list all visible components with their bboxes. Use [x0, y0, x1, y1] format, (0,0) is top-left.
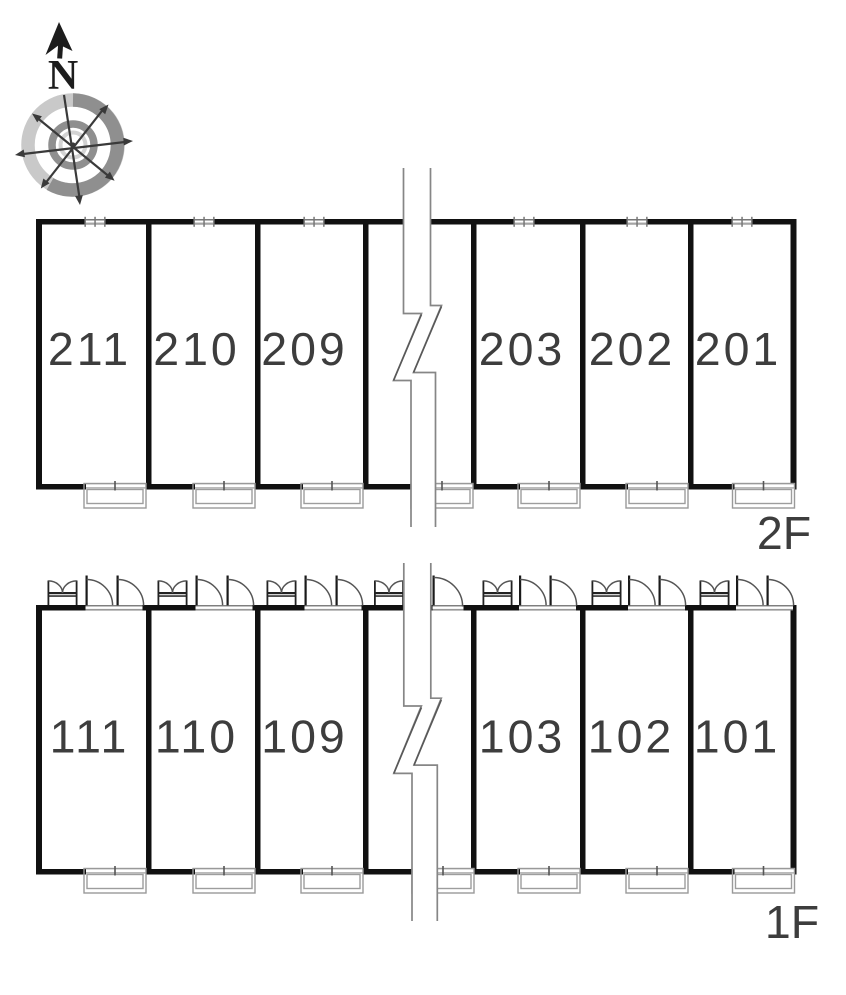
svg-text:211: 211 — [48, 323, 131, 375]
svg-text:111: 111 — [50, 711, 130, 763]
svg-text:110: 110 — [155, 711, 238, 763]
svg-text:103: 103 — [479, 711, 566, 763]
svg-text:109: 109 — [261, 711, 348, 763]
svg-text:102: 102 — [588, 711, 675, 763]
svg-text:209: 209 — [261, 323, 348, 375]
svg-text:210: 210 — [153, 323, 240, 375]
svg-text:201: 201 — [695, 323, 782, 375]
svg-text:203: 203 — [479, 323, 566, 375]
svg-text:202: 202 — [589, 323, 676, 375]
svg-text:101: 101 — [694, 711, 781, 763]
svg-text:N: N — [48, 53, 78, 99]
svg-text:1F: 1F — [765, 896, 819, 948]
svg-text:2F: 2F — [757, 507, 811, 559]
